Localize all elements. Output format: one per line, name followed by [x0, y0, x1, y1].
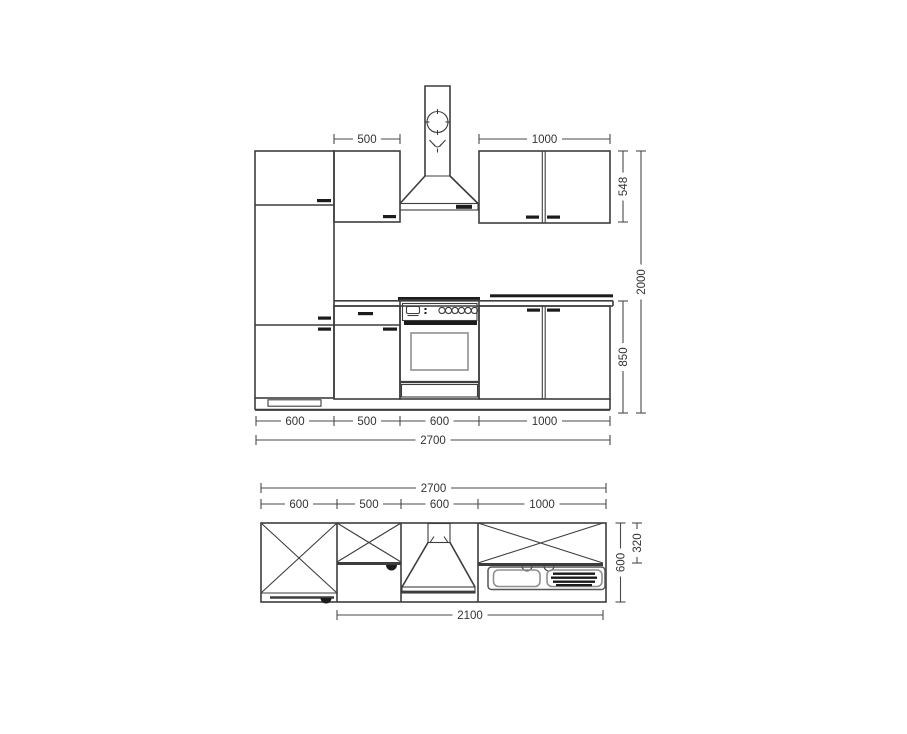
- dim-label: 850: [618, 347, 630, 366]
- dim-label: 1000: [532, 416, 558, 428]
- dim-plan-worktop-depth: 600: [615, 523, 628, 602]
- dim-plan-total-width: 2700: [261, 482, 606, 495]
- dim-plan-wall-depth: 320: [631, 523, 644, 563]
- dim-label: 600: [430, 499, 449, 511]
- door-handle: [526, 216, 539, 219]
- dim-label: 1000: [529, 499, 555, 511]
- oven-knobs: [439, 307, 478, 313]
- dim-label: 2700: [420, 435, 446, 447]
- base-cabinet-1000-elevation: [479, 306, 610, 399]
- door-handle: [547, 216, 560, 219]
- dim-label: 548: [618, 177, 630, 196]
- plan-view: 2700 600 500 600 1000: [261, 482, 644, 622]
- door-handle: [318, 328, 331, 331]
- dim-label: 2100: [457, 610, 483, 622]
- oven-elevation: [400, 300, 479, 399]
- wall-cabinet-500-elevation: [334, 151, 400, 222]
- dim-label: 500: [357, 416, 376, 428]
- oven-handle: [404, 321, 477, 325]
- dim-label: 600: [289, 499, 308, 511]
- dim-label: 600: [430, 416, 449, 428]
- wall-cabinet-1000-elevation: [479, 151, 610, 223]
- dim-elevation-total-width: 2700: [256, 434, 610, 447]
- dim-elevation-wall-left: 500: [334, 133, 400, 146]
- tall-cabinet-plan: [261, 523, 337, 604]
- door-handle: [317, 199, 331, 202]
- oven-drawer: [402, 385, 478, 398]
- dim-label: 1000: [532, 134, 558, 146]
- door-handle: [383, 215, 396, 218]
- dim-elevation-total-height: 2000: [635, 151, 648, 413]
- dim-label: 2700: [421, 483, 447, 495]
- dim-label: 2000: [636, 269, 648, 295]
- base-cabinet-500-elevation: [334, 306, 400, 399]
- dim-plan-run-width: 2100: [337, 609, 603, 622]
- dim-label: 500: [357, 134, 376, 146]
- oven-display-icon: [407, 307, 427, 316]
- dim-label: 600: [616, 553, 628, 572]
- airflow-icon: [430, 140, 446, 153]
- door-handle: [547, 309, 560, 312]
- door-handle: [318, 317, 331, 320]
- door-handle: [386, 565, 397, 571]
- dim-elevation-unit-widths: 600 500 600 1000: [256, 415, 610, 428]
- hood-light: [456, 205, 472, 209]
- dim-elevation-wall-height: 548: [617, 151, 630, 222]
- extractor-hood-plan: [402, 524, 475, 594]
- tall-cabinet-fridge-elevation: [255, 151, 334, 406]
- wall-cabinet-1000-plan: [478, 523, 603, 571]
- dim-label: 500: [359, 499, 378, 511]
- fan-icon: [425, 109, 451, 135]
- drawer-handle: [358, 312, 373, 315]
- drainer-ridges: [551, 573, 597, 587]
- drawing-svg: 500 1000 548 2000: [0, 0, 907, 734]
- plinth-vent-grille: [268, 400, 321, 406]
- door-handle: [383, 328, 397, 331]
- wall-cabinet-500-plan: [337, 523, 401, 571]
- oven-window: [411, 333, 468, 370]
- worktop-upstand: [490, 294, 613, 297]
- door-handle: [527, 309, 540, 312]
- kitchen-technical-drawing: 500 1000 548 2000: [0, 0, 907, 734]
- extractor-hood-elevation: [400, 86, 478, 210]
- sink-bowl: [494, 570, 541, 587]
- elevation-view: 500 1000 548 2000: [255, 86, 648, 447]
- dim-elevation-wall-right: 1000: [479, 133, 610, 146]
- dim-label: 320: [632, 533, 644, 552]
- dim-elevation-base-height: 850: [617, 301, 630, 413]
- dim-plan-unit-widths: 600 500 600 1000: [261, 498, 606, 511]
- dim-label: 600: [285, 416, 304, 428]
